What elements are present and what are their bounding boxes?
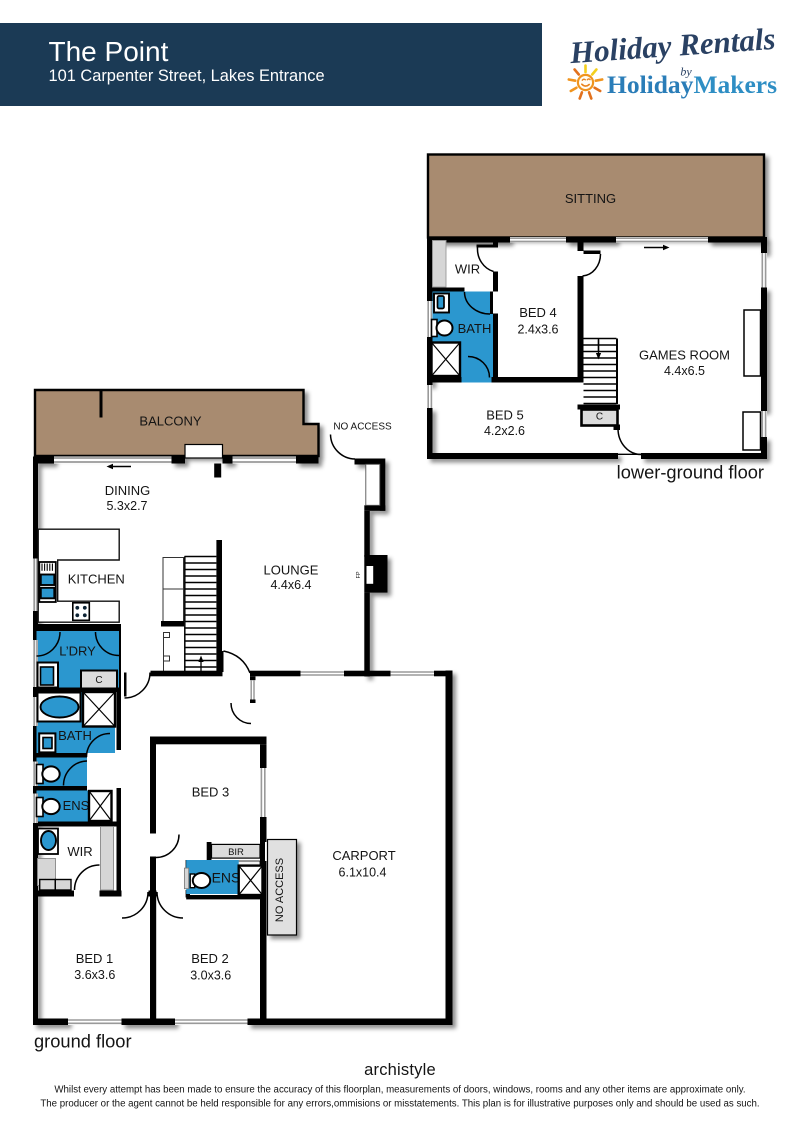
svg-text:6.1x10.4: 6.1x10.4 — [339, 866, 387, 880]
svg-text:Whilst every attempt has been: Whilst every attempt has been made to en… — [54, 1085, 745, 1096]
svg-text:SITTING: SITTING — [565, 191, 616, 206]
svg-text:4.4x6.5: 4.4x6.5 — [664, 364, 705, 378]
svg-text:BATH: BATH — [58, 728, 92, 743]
svg-text:ENS: ENS — [212, 870, 241, 886]
svg-text:C: C — [596, 412, 603, 423]
svg-text:L’DRY: L’DRY — [59, 644, 96, 659]
svg-text:archistyle: archistyle — [364, 1061, 436, 1079]
svg-text:C: C — [95, 675, 102, 686]
svg-text:lower-ground floor: lower-ground floor — [617, 462, 764, 483]
svg-text:101 Carpenter Street, Lakes En: 101 Carpenter Street, Lakes Entrance — [49, 67, 325, 85]
svg-text:BED 1: BED 1 — [76, 951, 114, 966]
svg-text:GAMES ROOM: GAMES ROOM — [639, 348, 730, 363]
svg-text:The Point: The Point — [49, 36, 169, 67]
svg-text:WIR: WIR — [455, 262, 480, 277]
svg-text:4.2x2.6: 4.2x2.6 — [484, 424, 525, 438]
svg-text:BED 4: BED 4 — [519, 305, 557, 320]
svg-text:BED 3: BED 3 — [192, 785, 230, 800]
svg-text:BATH: BATH — [458, 321, 492, 336]
svg-text:ground floor: ground floor — [34, 1031, 132, 1052]
svg-text:ENS: ENS — [63, 798, 90, 813]
svg-text:BED 5: BED 5 — [486, 408, 524, 423]
svg-text:DINING: DINING — [105, 483, 151, 498]
svg-text:BALCONY: BALCONY — [139, 414, 201, 429]
svg-text:HolidayMakers: HolidayMakers — [607, 70, 777, 99]
svg-text:BED 2: BED 2 — [191, 951, 229, 966]
svg-text:3.0x3.6: 3.0x3.6 — [190, 969, 231, 983]
svg-text:4.4x6.4: 4.4x6.4 — [270, 578, 311, 592]
svg-text:3.6x3.6: 3.6x3.6 — [74, 968, 115, 982]
svg-text:BIR: BIR — [228, 847, 244, 858]
svg-text:FP: FP — [356, 571, 362, 578]
svg-text:The producer or the agent cann: The producer or the agent cannot be held… — [40, 1099, 759, 1110]
svg-text:2.4x3.6: 2.4x3.6 — [517, 323, 558, 337]
svg-text:NO ACCESS: NO ACCESS — [274, 858, 286, 922]
svg-text:KITCHEN: KITCHEN — [68, 572, 125, 587]
svg-text:WIR: WIR — [67, 844, 92, 859]
svg-text:LOUNGE: LOUNGE — [264, 563, 319, 578]
svg-text:NO ACCESS: NO ACCESS — [333, 422, 392, 433]
svg-text:CARPORT: CARPORT — [332, 848, 395, 863]
svg-text:5.3x2.7: 5.3x2.7 — [106, 499, 147, 513]
